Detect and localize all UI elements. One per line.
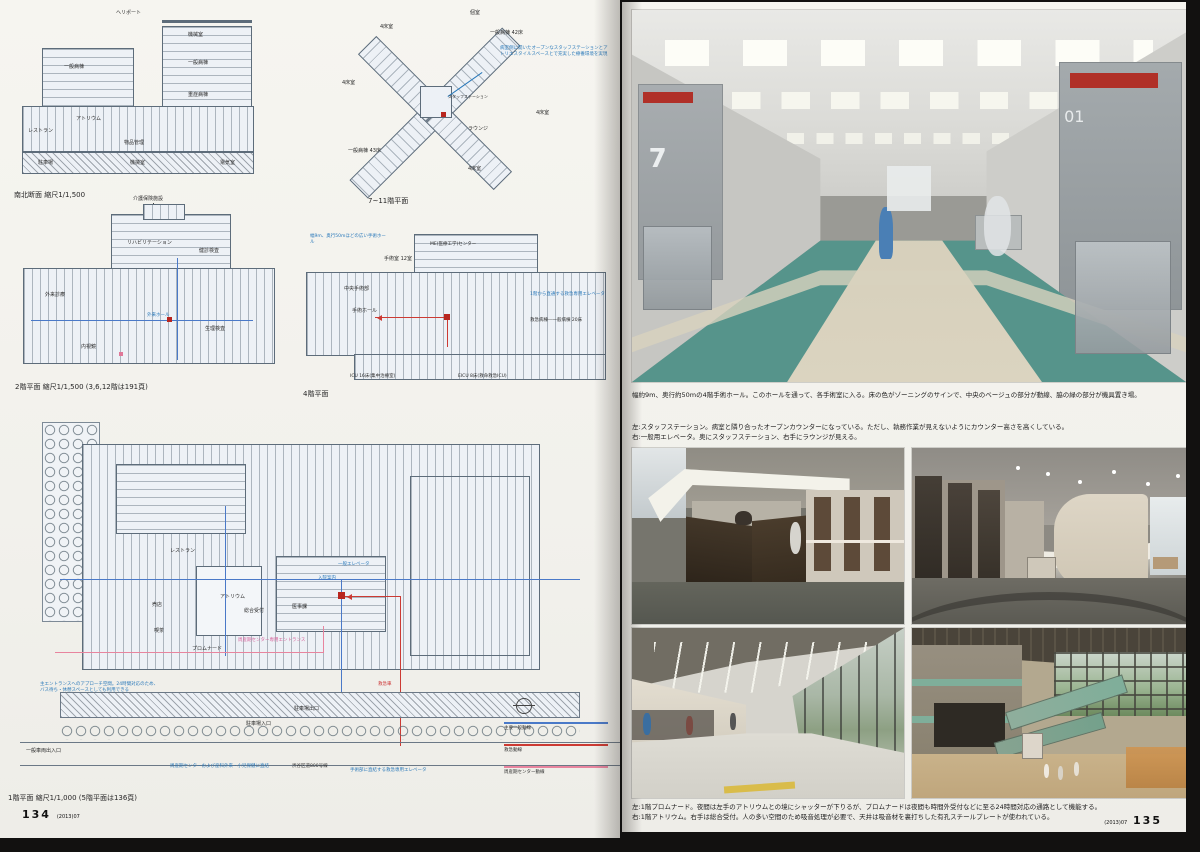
plan4f-label-eicu: EICU 8床(救命救急ICU) <box>458 374 507 380</box>
plan2f-label-checkup: 健診検査 <box>199 248 219 254</box>
site-label-elevator: 一般エレベータ <box>338 562 370 568</box>
plan4f-label-erward: 救急病棟―一般病棟 20床 <box>530 318 616 324</box>
site-label-road: 渋谷区道800号線 <box>292 764 328 770</box>
op-person-scrubs <box>879 207 893 259</box>
prom-person-3 <box>730 713 736 730</box>
ward-plan-7-11F: 個室 一般病棟 42床 4床室 4床室 4床室 4床室 ラウンジ 一般病棟 43… <box>340 8 616 198</box>
photo-operating-hall: 7 01 <box>632 10 1186 382</box>
plan2f-label-endoscope: 内視鏡 <box>81 344 96 350</box>
atrium-dark-core <box>934 703 1005 747</box>
right-issue-note: (2013)07 <box>1104 820 1127 826</box>
site-street-trees <box>60 724 580 740</box>
caption-bottom-photo-line1: 左:1階プロムナード。夜間は左手のアトリウムとの境にシャッターが下りるが、プロム… <box>632 802 1101 812</box>
photo-promenade <box>632 628 904 798</box>
site-label-medical: 医事課 <box>292 604 307 610</box>
left-issue-note: (2013)07 <box>57 814 80 820</box>
section-label-ward-right: 一般病棟 <box>188 60 208 66</box>
section-label-ward-left: 一般病棟 <box>64 64 84 70</box>
site-parking-aisle <box>60 692 580 718</box>
staff-door-3 <box>874 497 890 571</box>
op-door-right-sign <box>1070 73 1159 88</box>
plan4f-red-arrow <box>375 317 447 318</box>
plan2f-label-hall: 外来ホール <box>147 313 170 319</box>
caption-mid-photo-line2: 右:一般用エレベータ。奥にスタッフステーション、右手にラウンジが見える。 <box>632 432 861 442</box>
elev-cart <box>1027 557 1056 580</box>
plan-2F-caption: 2階平面 縮尺1/1,500 (3,6,12階は191頁) <box>15 382 148 392</box>
section-label-electric: 電気室 <box>220 160 235 166</box>
op-carts-left <box>643 226 711 310</box>
site-blue-line-v1 <box>225 506 226 656</box>
ward-label-4c: 4床室 <box>536 110 549 116</box>
plan4f-red-line-v <box>447 317 448 347</box>
section-label-machine-top: 機械室 <box>188 32 203 38</box>
plan2f-label-physio: 生理検査 <box>205 326 225 332</box>
op-door-left-sign <box>643 92 693 103</box>
magazine-spread-scan: ヘリポート 機械室 一般病棟 一般病棟 重症病棟 アトリウム レストラン 物品管… <box>0 0 1200 852</box>
caption-top-photo: 幅約9m、奥行約50mの4階手術ホール。このホールを通って、各手術室に入る。床の… <box>632 390 1141 400</box>
left-page: ヘリポート 機械室 一般病棟 一般病棟 重症病棟 アトリウム レストラン 物品管… <box>0 0 620 838</box>
plan4f-annotation-elevator: 1階から直通する救急専用エレベータ <box>530 292 616 298</box>
right-page: 7 01 幅約9m、奥行約50mの4階手術ホール。このホールを通って、各手術室に… <box>622 2 1186 832</box>
section-label-atrium: アトリウム <box>76 116 101 122</box>
op-door-left-number: 7 <box>649 144 667 174</box>
caption-mid-photo-line1: 左:スタッフステーション。病室と隣り合ったオープンカウンターになっている。ただし… <box>632 422 1068 432</box>
legend-label-general: 主要一般動線 <box>504 726 531 732</box>
elev-curved-volume <box>1054 494 1147 589</box>
site-block-atrium <box>196 566 262 636</box>
elev-door-2 <box>948 483 973 585</box>
section-label-parking: 駐車場 <box>38 160 53 166</box>
site-label-shop: 売店 <box>152 602 162 608</box>
site-red-marker <box>338 592 345 599</box>
site-label-car-gate: 一般車両出入口 <box>26 748 61 754</box>
site-annotation-er-elevator: 手術部に直結する救急専用エレベータ <box>350 768 440 774</box>
op-carts-right <box>1075 241 1171 355</box>
section-label-machine-b: 機械室 <box>130 160 145 166</box>
site-label-parking-out: 駐車場出口 <box>294 706 319 712</box>
staff-door-1 <box>814 497 830 571</box>
photo-atrium <box>912 628 1186 798</box>
staff-person-head <box>735 511 751 525</box>
ward-label-43: 一般病棟 43床 <box>348 148 381 154</box>
op-ceiling-lights-row2 <box>732 92 1087 109</box>
section-label-heliport: ヘリポート <box>116 10 141 16</box>
staff-floor <box>632 582 904 624</box>
ward-annotation: 病室側に開いたオープンなスタッフステーションとアトリエスタイルスペースとで充実し… <box>500 46 608 57</box>
legend-line-general <box>504 722 608 724</box>
section-heliport-deck <box>162 20 252 23</box>
plan-1F-site: レストラン アトリウム 総合受付 医事課 売店 喫茶 プロムナード 入院案内 一… <box>20 416 620 788</box>
plan4f-annotation-hall: 幅9m、奥行50mほどの広い手術ホール <box>310 234 390 245</box>
site-block-east <box>410 476 530 656</box>
ward-red-marker <box>441 112 446 117</box>
section-drawing: ヘリポート 機械室 一般病棟 一般病棟 重症病棟 アトリウム レストラン 物品管… <box>12 8 262 180</box>
op-door-right-number: 01 <box>1064 107 1084 126</box>
ward-label-staff: スタッフステーション <box>448 94 488 99</box>
plan-4F-caption: 4階平面 <box>303 389 328 399</box>
plan4f-label-central: 中央手術部 <box>344 286 369 292</box>
ward-label-4b: 4床室 <box>342 80 355 86</box>
plan4f-red-marker <box>444 314 450 320</box>
site-road <box>20 742 620 766</box>
legend-label-perinatal: 周産期センター動線 <box>504 770 545 776</box>
plan4f-block-top <box>414 234 538 274</box>
plan4f-label-op12: 手術室 12室 <box>384 256 412 262</box>
atrium-shop-glow <box>1126 747 1186 788</box>
plan2f-block-stub <box>143 204 185 220</box>
section-label-supply: 物品管理 <box>124 140 144 146</box>
ward-core <box>420 86 452 118</box>
left-page-number-value: 134 <box>22 808 51 821</box>
site-annotation-entrance: 主エントランスへのアプローチ空間。24時間対応のため、バス待ち・休憩スペースとし… <box>40 682 160 693</box>
op-person-gown <box>984 196 1012 256</box>
right-page-number-value: 135 <box>1133 814 1162 827</box>
caption-bottom-photo-line2: 右:1階アトリウム。右手は総合受付。人の多い空間のため吸音処理が必要で、天井は吸… <box>632 812 1054 822</box>
legend-label-emergency: 救急動線 <box>504 748 522 754</box>
plan2f-blue-line-v <box>177 258 178 360</box>
photo-elevator-hall <box>912 448 1186 624</box>
site-block-restaurant <box>116 464 246 534</box>
legend-line-perinatal <box>504 766 608 768</box>
plan-2F: 介護保険施設 リハビリテーション 健診検査 外来ホール 外来診療 内視鏡 生理検… <box>15 196 289 376</box>
photo-staff-station <box>632 448 904 624</box>
staff-nurse-figure <box>790 522 801 554</box>
plan4f-block-main <box>306 272 606 356</box>
staff-handrail <box>806 540 904 544</box>
right-page-number: (2013)07 135 <box>1104 814 1162 827</box>
ward-label-42: 一般病棟 42床 <box>490 30 523 36</box>
site-block-reception <box>276 556 386 632</box>
ward-label-4a: 4床室 <box>380 24 393 30</box>
site-annotation-direct: 周産期センターおよび産科外来・小児保健に直結 <box>170 764 269 770</box>
op-end-window <box>887 166 931 211</box>
legend-line-emergency <box>504 744 608 746</box>
ward-label-private: 個室 <box>470 10 480 16</box>
section-label-icu: 重症病棟 <box>188 92 208 98</box>
site-red-arrow <box>345 596 401 597</box>
elev-bench <box>1153 557 1178 569</box>
plan4f-label-ophall: 手術ホール <box>352 308 377 314</box>
ward-label-4d: 4床室 <box>468 166 481 172</box>
atrium-balcony-glass-1 <box>912 679 1022 686</box>
atrium-kiosk <box>1022 733 1043 759</box>
plan4f-label-me: ME(医療工学)センター <box>430 242 476 248</box>
site-label-atrium: アトリウム <box>220 594 245 600</box>
site-label-ambulance: 救急車 <box>378 682 392 688</box>
plan-4F: 幅9m、奥行50mほどの広い手術ホール ME(医療工学)センター 手術室 12室… <box>296 230 622 388</box>
plan2f-blue-line-h <box>31 320 253 321</box>
site-pink-line-v <box>323 626 324 653</box>
left-page-number: 134 (2013)07 <box>22 808 80 821</box>
site-label-parking-in: 駐車場入口 <box>246 721 271 727</box>
elev-door-3 <box>978 490 1000 578</box>
atrium-people <box>1044 764 1049 778</box>
plan2f-label-outpatient: 外来診療 <box>45 292 65 298</box>
elev-downlights <box>1016 466 1020 470</box>
site-label-cafe: 喫茶 <box>154 628 164 634</box>
section-label-restaurant: レストラン <box>28 128 53 134</box>
plan2f-pink-marker <box>119 352 123 356</box>
plan-1F-caption: 1階平面 縮尺1/1,000 (5階平面は136頁) <box>8 793 137 803</box>
site-annotation-perinatal: 周産期センター専用エントランス <box>238 638 308 644</box>
site-pink-line <box>55 652 323 653</box>
north-arrow-icon <box>516 698 532 714</box>
site-label-restaurant: レストラン <box>170 548 195 554</box>
ward-plan-caption: 7~11階平面 <box>368 196 408 206</box>
ward-label-lounge: ラウンジ <box>468 126 488 132</box>
site-label-admission: 入院案内 <box>318 576 336 582</box>
op-ceiling-lights-row3 <box>787 133 1031 144</box>
plan4f-label-icu: ICU 16床(集中治療室) <box>350 374 395 380</box>
plan2f-annotation-top: 介護保険施設 <box>133 196 163 202</box>
site-label-promenade: プロムナード <box>192 646 222 652</box>
site-label-reception: 総合受付 <box>244 608 264 614</box>
plan2f-label-rehab: リハビリテーション <box>127 240 172 246</box>
elev-door-1 <box>915 476 942 592</box>
staff-door-2 <box>844 497 860 571</box>
prom-person-1 <box>643 713 651 735</box>
